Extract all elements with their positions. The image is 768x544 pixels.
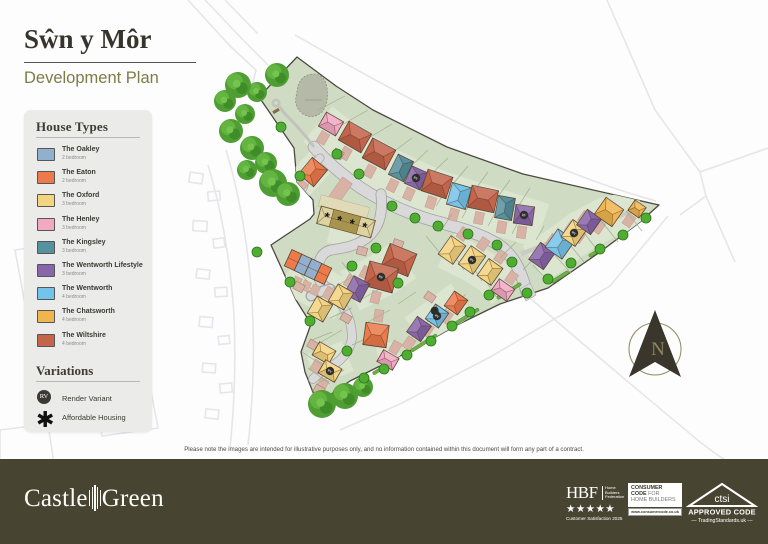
svg-text:— TradingStandards.uk —: — TradingStandards.uk — [691, 518, 753, 524]
svg-text:N: N [651, 339, 665, 360]
svg-text:ctsi: ctsi [715, 494, 730, 505]
svg-text:APPROVED CODE: APPROVED CODE [688, 508, 756, 517]
